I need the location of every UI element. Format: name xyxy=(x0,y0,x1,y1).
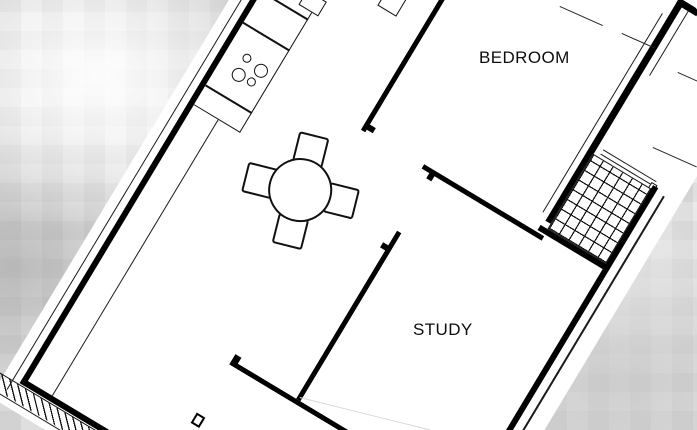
round-dining-table-icon xyxy=(261,151,339,229)
room-label-study: STUDY xyxy=(413,320,473,340)
floor-plan-viewport: BEDROOM STUDY xyxy=(0,0,697,430)
room-label-bedroom: BEDROOM xyxy=(479,48,570,68)
